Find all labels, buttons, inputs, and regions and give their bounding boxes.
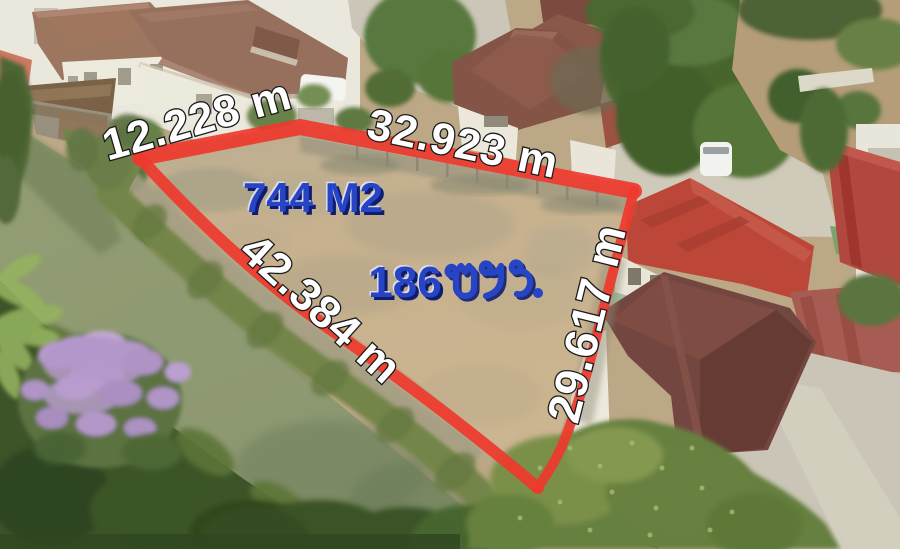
- svg-text:186: 186: [368, 258, 441, 307]
- svg-text:744 M2: 744 M2: [243, 174, 383, 221]
